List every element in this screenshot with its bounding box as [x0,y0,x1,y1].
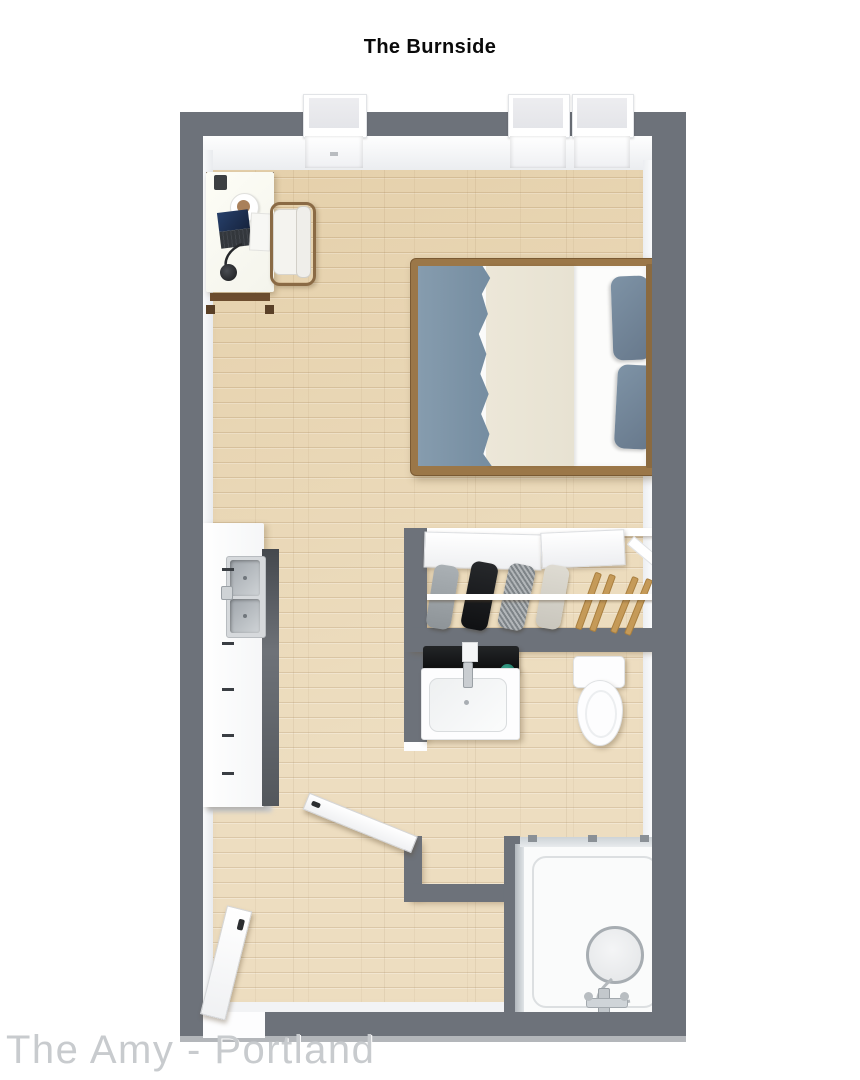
watermark: The Amy - Portland [6,1028,375,1073]
window-shade [513,98,563,128]
window-shade [309,98,359,128]
outer-wall-left [180,112,203,1040]
window-handle [330,152,338,156]
desk-lamp-head [220,264,237,281]
shower-handle [620,992,629,1001]
bed-duvet [486,266,574,466]
door-handle [237,919,245,931]
outer-wall-right [652,112,686,1040]
cabinet-handle [222,734,234,737]
closet-sliding-door-right [540,529,625,569]
desk-chair-backrest [296,206,311,278]
shower-glass-left [515,844,524,1014]
glass-clamp [588,835,597,842]
desk-leg [206,305,215,314]
shower-handle [584,992,593,1001]
pen-holder [214,175,227,190]
desk-rail [210,293,270,301]
desk-leg [265,305,274,314]
glass-clamp [640,835,649,842]
papers [249,212,272,251]
sink-drain [243,614,247,618]
window-sill [510,136,566,168]
cabinet-handle [222,772,234,775]
toilet-seat [585,690,617,738]
cabinet-handle [222,568,234,571]
window-shade [577,98,627,128]
sink-drain [243,576,247,580]
glass-clamp [528,835,537,842]
floor-plan-page: { "title": "The Burnside", "watermark": … [0,0,860,1080]
window-sill [574,136,630,168]
bathroom-south-wall [404,884,516,902]
vanity-faucet [463,662,473,688]
door-handle [311,800,321,808]
bathroom-door-jamb [404,742,427,751]
closet-rod [427,594,657,600]
shelf-bracket [462,642,478,662]
plan-title: The Burnside [0,36,860,59]
vanity-drain [464,700,469,705]
sink-faucet [221,586,233,600]
cabinet-handle [222,688,234,691]
cabinet-handle [222,642,234,645]
